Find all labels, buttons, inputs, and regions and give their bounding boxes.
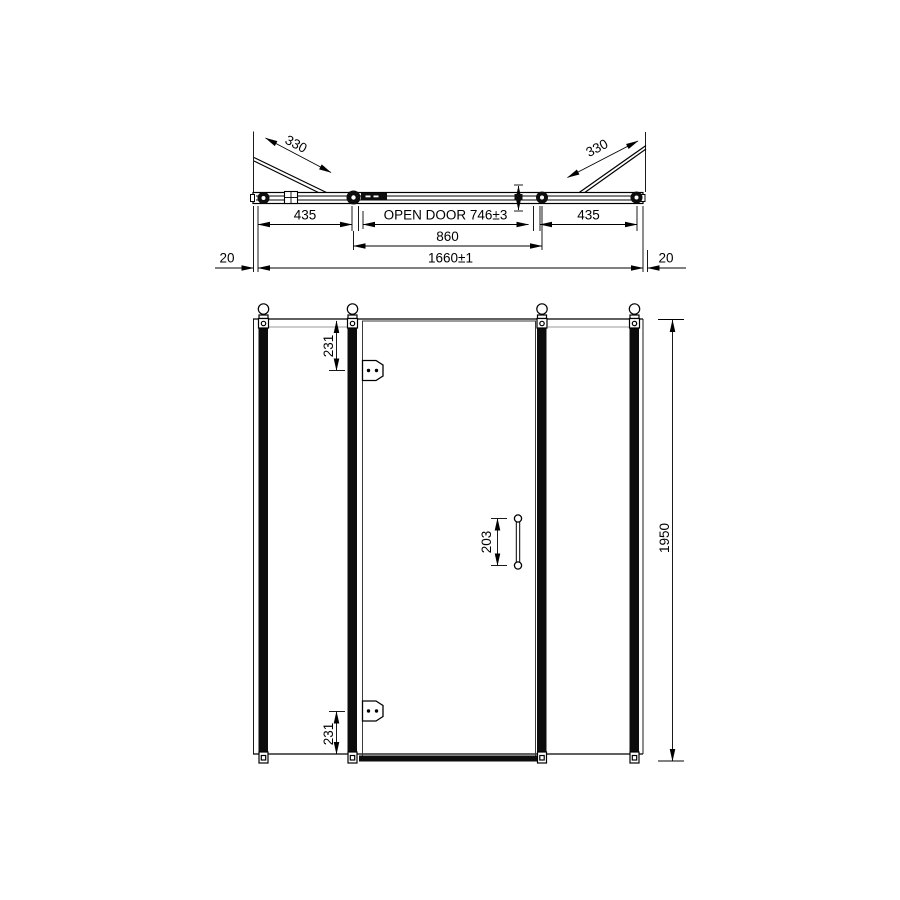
dim-231-bottom: 231: [321, 712, 345, 755]
foot-post-2: [348, 752, 357, 763]
foot-post-1: [259, 752, 268, 763]
dim-1950-height: 1950: [657, 320, 684, 762]
handle-plan-symbol: [514, 185, 523, 211]
dim-231-top-label: 231: [321, 335, 336, 358]
hinge-plate-bottom: [363, 701, 384, 721]
dim-1950-label: 1950: [657, 523, 672, 553]
drawing-canvas: 330 330: [0, 0, 900, 900]
plan-dimension-row-2: 860: [354, 229, 543, 246]
plan-view: 330 330: [215, 132, 686, 273]
dim-20-left-label: 20: [219, 251, 234, 266]
dim-20-right-label: 20: [658, 251, 673, 266]
door-handle: [514, 515, 521, 569]
finial-post-4: [629, 304, 639, 328]
post-2: [348, 322, 358, 752]
post-4: [630, 322, 640, 752]
dim-330-left-label: 330: [283, 132, 310, 156]
dim-231-bottom-label: 231: [321, 723, 336, 746]
dim-203-label: 203: [479, 531, 494, 554]
plan-dimension-row-3: 20 1660±1 20: [215, 251, 686, 269]
dim-1660-label: 1660±1: [428, 251, 473, 266]
dim-435-right-label: 435: [577, 208, 600, 223]
finial-post-1: [258, 304, 268, 328]
door-panel: [363, 321, 536, 756]
finial-post-2: [347, 304, 357, 328]
hinge-plate-top: [363, 361, 384, 381]
dim-203-handle: 203: [479, 519, 507, 566]
elevation-view: 231 231 203 1950: [253, 304, 684, 763]
dim-330-right-label: 330: [583, 136, 610, 160]
dim-860-label: 860: [436, 229, 459, 244]
dim-231-top: 231: [321, 321, 345, 371]
top-rail-profile: [251, 193, 646, 204]
plan-dimension-row-1: 435 OPEN DOOR 746±3 435: [258, 208, 637, 225]
post-1: [259, 322, 269, 752]
dim-435-left-label: 435: [294, 208, 317, 223]
door-bottom-rail: [359, 756, 537, 762]
foot-post-3: [538, 752, 547, 763]
dim-open-door-label: OPEN DOOR 746±3: [384, 208, 508, 223]
finials: [258, 304, 639, 328]
finial-post-3: [537, 304, 547, 328]
rail-left-cap: [251, 195, 255, 202]
side-panel-swing-left: 330: [254, 132, 331, 194]
foot-post-4: [630, 752, 639, 763]
post-3: [537, 322, 547, 752]
side-panel-swing-right: 330: [568, 136, 647, 194]
shower-enclosure-technical-drawing: 330 330: [0, 0, 900, 900]
